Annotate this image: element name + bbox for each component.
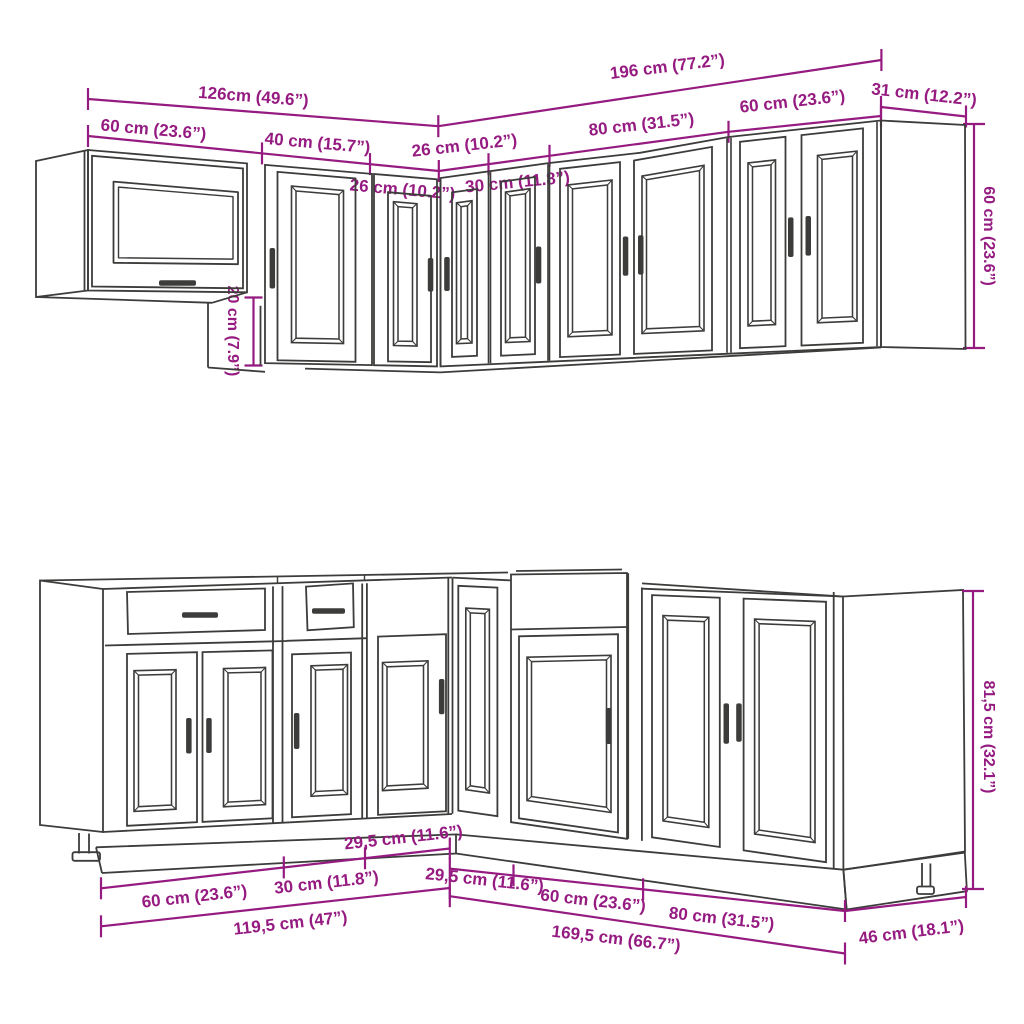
- svg-text:60 cm (23.6”): 60 cm (23.6”): [980, 186, 997, 286]
- svg-text:81,5 cm (32.1”): 81,5 cm (32.1”): [980, 681, 997, 794]
